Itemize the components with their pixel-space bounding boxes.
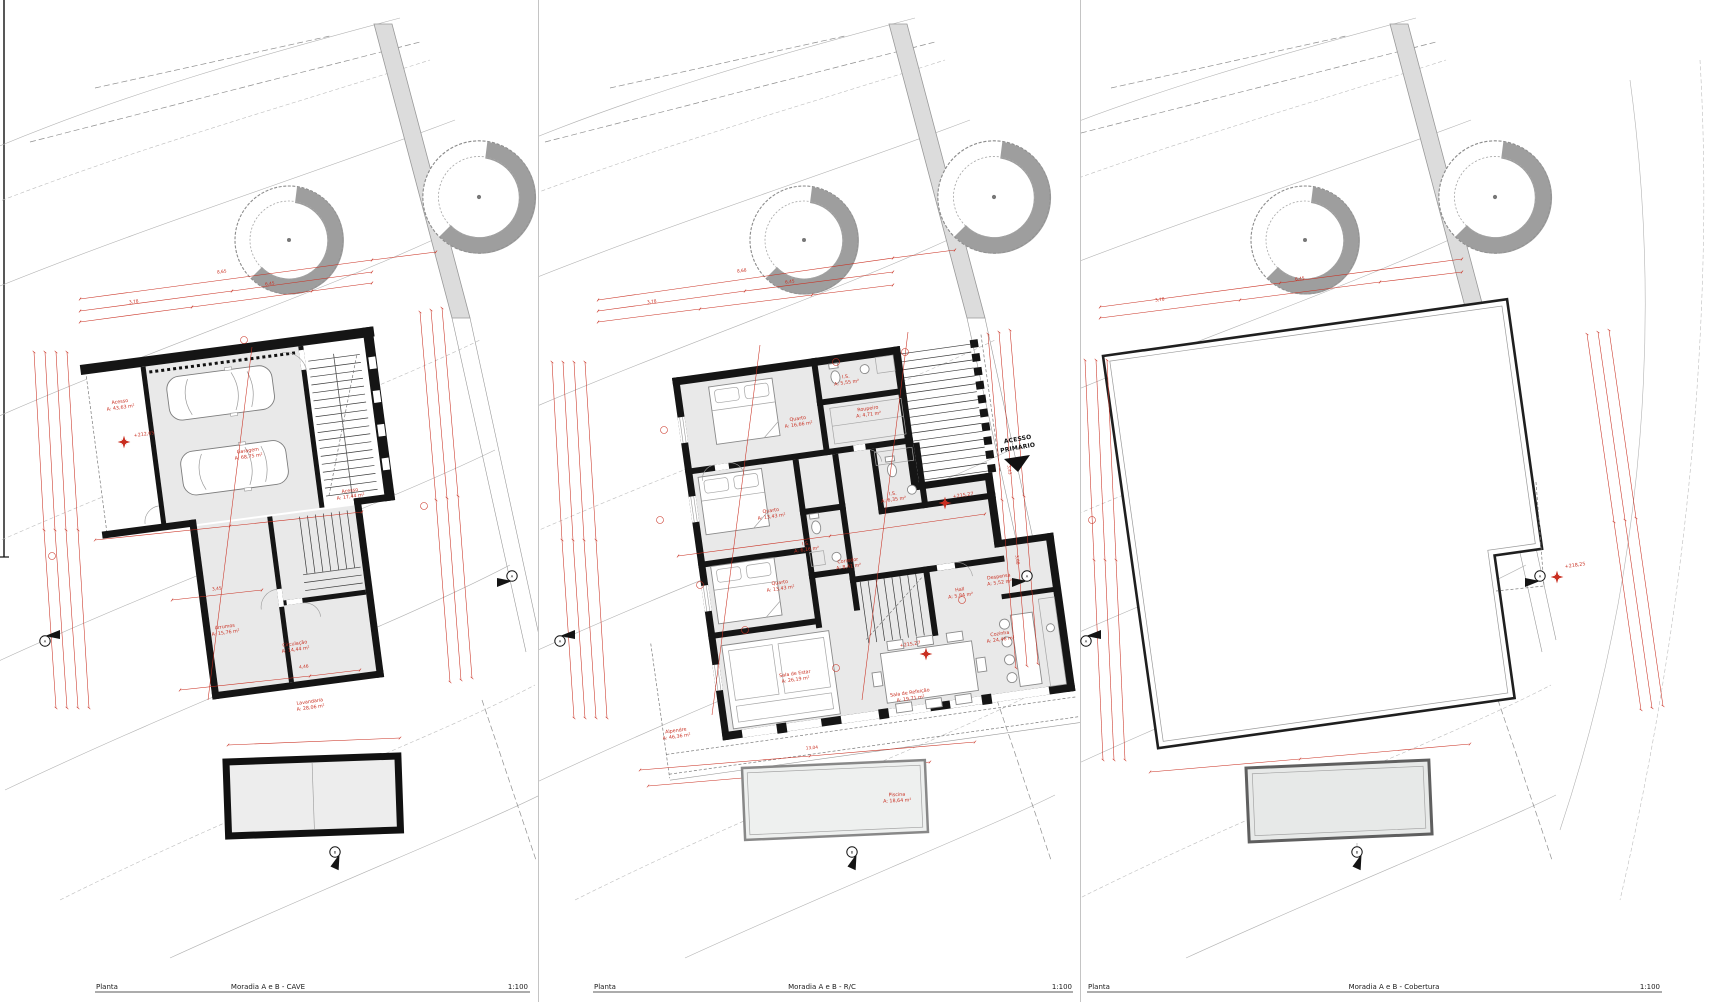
drawing-type-label: Planta [96,983,118,991]
rc-floor-plan [615,328,1080,780]
drawing-scale: 1:100 [508,983,528,991]
svg-text:3,78: 3,78 [129,298,140,305]
drawing-title: Moradia A e B - Cobertura [1349,983,1440,991]
svg-text:8,68: 8,68 [737,267,748,274]
panel-cave: 3,78 6,45 8,65 3,45 4,46 AcessoA: 43,63 … [0,18,540,958]
drawing-title: Moradia A e B - CAVE [231,983,305,991]
drawing-type-label: Planta [594,983,616,991]
svg-text:3,43: 3,43 [1005,465,1012,475]
primary-access-annotation: ACESSO PRIMÁRIO [1000,434,1036,472]
svg-text:LavandariaA: 28,06 m²: LavandariaA: 28,06 m² [295,697,325,713]
svg-text:3,68: 3,68 [1013,555,1020,565]
pool-cave [226,756,400,836]
drawing-type-label: Planta [1088,983,1110,991]
pool-cobertura [1246,760,1432,842]
drawing-sheet: 3,78 6,45 8,65 3,45 4,46 AcessoA: 43,63 … [0,0,1714,1002]
svg-text:3,78: 3,78 [647,298,658,305]
level-marker-icon [1551,571,1564,584]
svg-text:3,78: 3,78 [1155,296,1166,303]
panel-rc: 3,78 6,45 8,68 3,43 3,68 13,04 ACESSO PR… [505,18,1080,958]
bed-icon [698,468,769,534]
title-bars: Planta Moradia A e B - CAVE 1:100 Planta… [95,983,1662,992]
drawing-title: Moradia A e B - R/C [788,983,856,991]
drawing-scale: 1:100 [1640,983,1660,991]
cave-floor-plan [80,326,419,711]
svg-text:AlpendreA: 46,36 m²: AlpendreA: 46,36 m² [661,726,691,742]
svg-text:8,65: 8,65 [217,268,228,275]
level-value: +218,25 [1564,561,1585,570]
svg-text:13,04: 13,04 [806,744,819,751]
panel-cobertura: 3,78 6,45 +218,25 [1006,18,1704,958]
roof-plan [1103,299,1562,748]
bed-icon [709,378,780,444]
drawing-scale: 1:100 [1052,983,1072,991]
floor-plan-sheet: 3,78 6,45 8,65 3,45 4,46 AcessoA: 43,63 … [0,0,1714,1002]
